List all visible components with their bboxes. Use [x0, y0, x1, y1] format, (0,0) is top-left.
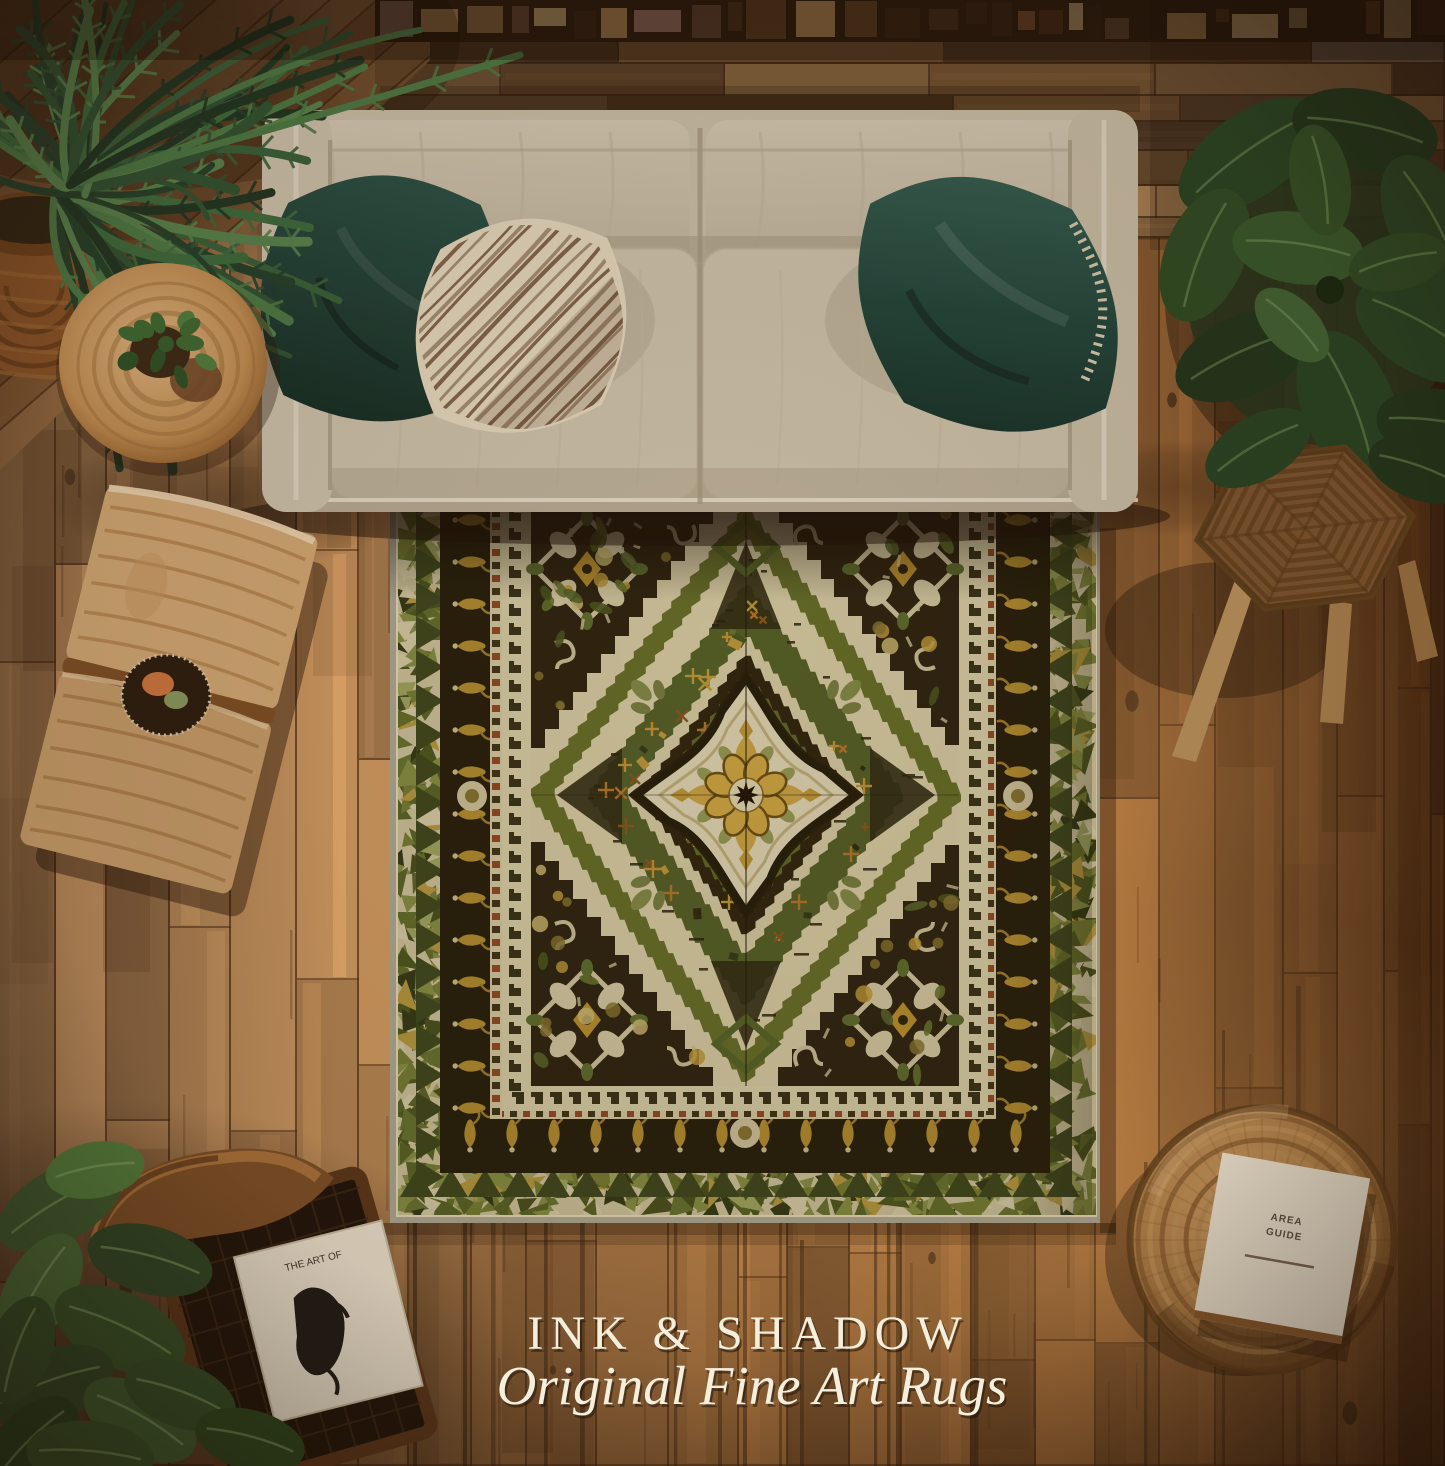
- svg-text:Original Fine Art Rugs: Original Fine Art Rugs: [497, 1355, 1008, 1416]
- svg-text:INK & SHADOW: INK & SHADOW: [527, 1307, 968, 1360]
